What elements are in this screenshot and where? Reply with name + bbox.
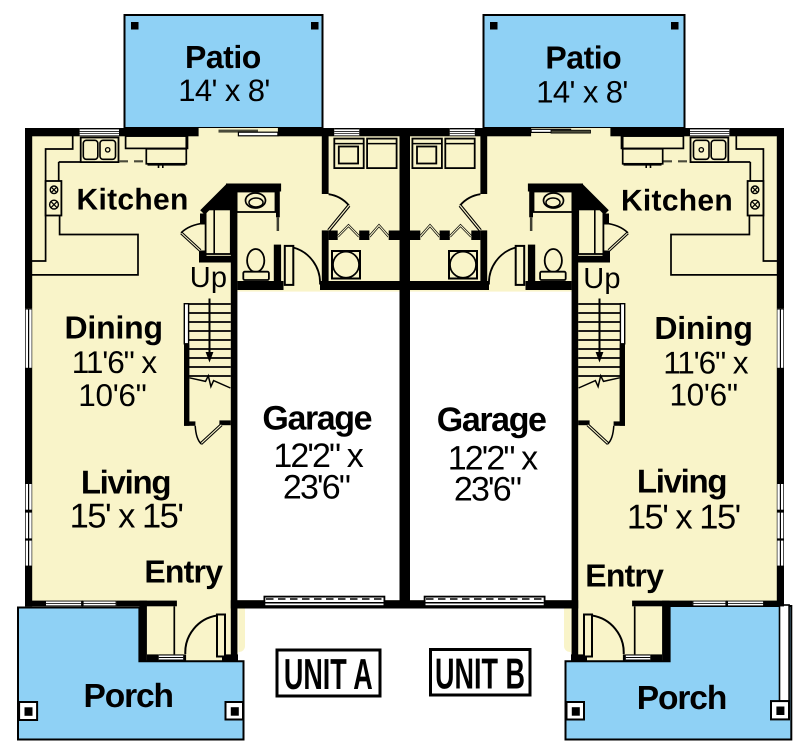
svg-text:Up: Up: [190, 262, 227, 294]
svg-text:11'6" x: 11'6" x: [72, 344, 158, 380]
svg-text:UNIT A: UNIT A: [284, 651, 373, 699]
svg-text:23'6": 23'6": [454, 471, 521, 509]
svg-text:Living: Living: [81, 463, 170, 500]
svg-text:14' x 8': 14' x 8': [178, 73, 270, 108]
svg-text:Porch: Porch: [83, 678, 172, 715]
svg-text:Entry: Entry: [585, 558, 664, 594]
svg-text:Garage: Garage: [262, 400, 371, 438]
svg-text:Entry: Entry: [144, 554, 223, 590]
svg-text:Dining: Dining: [65, 309, 163, 345]
svg-text:Dining: Dining: [654, 310, 752, 346]
svg-text:23'6": 23'6": [283, 469, 350, 507]
svg-text:10'6": 10'6": [78, 377, 146, 413]
svg-text:15' x 15': 15' x 15': [627, 499, 740, 537]
svg-text:14' x 8': 14' x 8': [536, 75, 628, 110]
svg-text:Garage: Garage: [437, 401, 546, 439]
svg-text:15' x 15': 15' x 15': [70, 498, 183, 536]
svg-text:Patio: Patio: [545, 40, 621, 76]
svg-text:11'6" x: 11'6" x: [663, 345, 749, 381]
svg-text:10'6": 10'6": [669, 377, 737, 413]
svg-text:Up: Up: [583, 263, 620, 295]
svg-text:UNIT B: UNIT B: [435, 651, 525, 699]
svg-text:Kitchen: Kitchen: [77, 184, 189, 217]
svg-text:Porch: Porch: [637, 680, 726, 717]
svg-text:Living: Living: [637, 463, 726, 500]
svg-text:Kitchen: Kitchen: [621, 185, 733, 218]
svg-text:Patio: Patio: [185, 39, 261, 75]
